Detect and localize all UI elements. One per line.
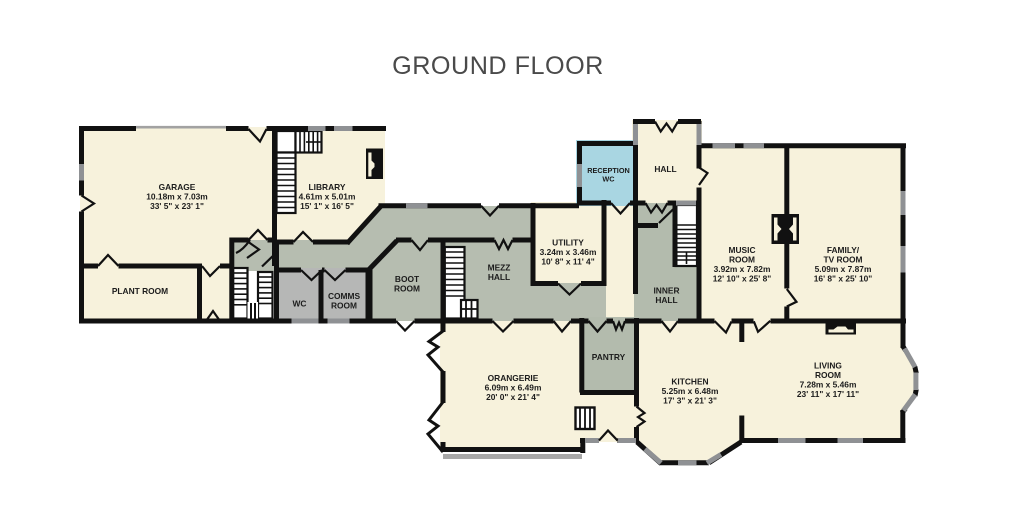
svg-text:PLANT ROOM: PLANT ROOM bbox=[112, 286, 168, 296]
svg-text:TV ROOM: TV ROOM bbox=[823, 255, 862, 265]
svg-text:INNER: INNER bbox=[653, 286, 679, 296]
svg-text:COMMS: COMMS bbox=[328, 291, 361, 301]
svg-text:BOOT: BOOT bbox=[395, 274, 420, 284]
svg-text:ROOM: ROOM bbox=[815, 370, 841, 380]
svg-text:WC: WC bbox=[293, 299, 307, 309]
svg-text:12' 10" x 25' 8": 12' 10" x 25' 8" bbox=[713, 274, 772, 284]
svg-text:ORANGERIE: ORANGERIE bbox=[488, 373, 539, 383]
svg-text:ROOM: ROOM bbox=[729, 255, 755, 265]
svg-text:20' 0" x 21' 4": 20' 0" x 21' 4" bbox=[486, 392, 540, 402]
svg-text:GARAGE: GARAGE bbox=[159, 182, 196, 192]
svg-text:4.61m x 5.01m: 4.61m x 5.01m bbox=[299, 192, 356, 202]
svg-text:7.28m x 5.46m: 7.28m x 5.46m bbox=[800, 380, 857, 390]
svg-text:23' 11" x 17' 11": 23' 11" x 17' 11" bbox=[797, 389, 859, 399]
svg-text:HALL: HALL bbox=[488, 272, 510, 282]
svg-text:5.09m x 7.87m: 5.09m x 7.87m bbox=[815, 264, 872, 274]
svg-text:PANTRY: PANTRY bbox=[592, 352, 626, 362]
svg-text:3.24m x 3.46m: 3.24m x 3.46m bbox=[540, 247, 597, 257]
svg-text:KITCHEN: KITCHEN bbox=[671, 377, 708, 387]
svg-text:10' 8" x 11' 4": 10' 8" x 11' 4" bbox=[541, 257, 594, 267]
svg-text:HALL: HALL bbox=[654, 164, 676, 174]
svg-text:LIVING: LIVING bbox=[814, 361, 842, 371]
svg-text:ROOM: ROOM bbox=[394, 284, 420, 294]
svg-text:UTILITY: UTILITY bbox=[552, 238, 584, 248]
svg-text:33' 5" x 23' 1": 33' 5" x 23' 1" bbox=[150, 201, 204, 211]
svg-text:6.09m x 6.49m: 6.09m x 6.49m bbox=[485, 383, 542, 393]
svg-text:16' 8" x 25' 10": 16' 8" x 25' 10" bbox=[814, 274, 873, 284]
svg-text:LIBRARY: LIBRARY bbox=[309, 182, 346, 192]
svg-text:FAMILY/: FAMILY/ bbox=[827, 245, 860, 255]
svg-text:5.25m x 6.48m: 5.25m x 6.48m bbox=[662, 386, 719, 396]
svg-text:3.92m x 7.82m: 3.92m x 7.82m bbox=[714, 264, 771, 274]
svg-text:MUSIC: MUSIC bbox=[729, 245, 756, 255]
svg-text:MEZZ: MEZZ bbox=[488, 263, 511, 273]
svg-text:HALL: HALL bbox=[655, 295, 677, 305]
svg-text:GROUND FLOOR: GROUND FLOOR bbox=[392, 52, 604, 80]
svg-text:10.18m x 7.03m: 10.18m x 7.03m bbox=[146, 192, 207, 202]
svg-text:ROOM: ROOM bbox=[331, 301, 357, 311]
svg-text:17' 3" x 21' 3": 17' 3" x 21' 3" bbox=[663, 396, 717, 406]
svg-text:15' 1" x 16' 5": 15' 1" x 16' 5" bbox=[300, 201, 354, 211]
svg-text:WC: WC bbox=[602, 175, 615, 184]
